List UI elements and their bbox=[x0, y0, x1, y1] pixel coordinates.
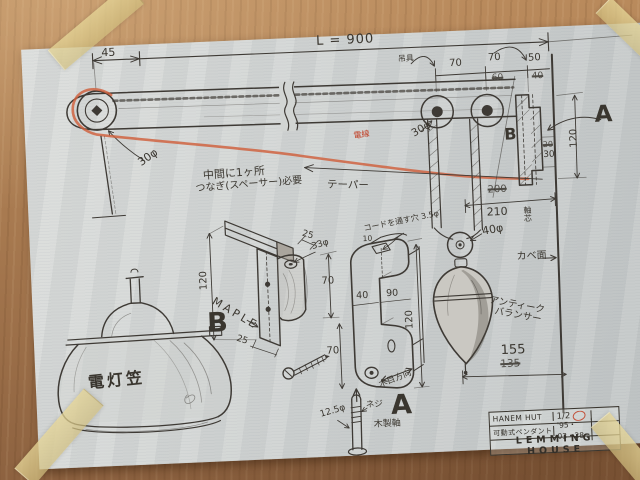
part-a-label: A bbox=[390, 391, 412, 420]
dim-40-old: 40 bbox=[532, 72, 544, 82]
part-a-dim-70: 70 bbox=[326, 346, 339, 357]
project-name: HANEM HUT bbox=[490, 412, 554, 424]
balancer-weight bbox=[432, 266, 496, 376]
part-b-dim-120: 120 bbox=[199, 271, 210, 291]
arm-bar bbox=[66, 71, 517, 141]
drawing-paper: 45 L = 900 吊具 70 70 60 50 40 30φ 30φ 中間に… bbox=[21, 23, 640, 470]
dim-50: 50 bbox=[528, 53, 541, 64]
note-hanger: 吊具 bbox=[398, 55, 414, 64]
part-a-dim-90: 90 bbox=[386, 289, 399, 299]
note-wood-shaft: 木製軸 bbox=[374, 420, 401, 431]
dim-30-step: 30 bbox=[543, 151, 555, 161]
part-a-dim-10: 10 bbox=[363, 235, 373, 243]
dim-70-a: 70 bbox=[449, 59, 462, 70]
dim-200-old: 200 bbox=[488, 185, 508, 196]
note-axis-core: 軸芯 bbox=[522, 206, 531, 222]
dim-60-old: 60 bbox=[492, 74, 504, 84]
photo-of-sketch: 45 L = 900 吊具 70 70 60 50 40 30φ 30φ 中間に… bbox=[0, 0, 640, 480]
wall-and-bracket bbox=[300, 53, 613, 424]
dim-total-length: L = 900 bbox=[316, 32, 375, 48]
dim-45: 45 bbox=[101, 47, 115, 59]
note-screw: ネジ bbox=[366, 400, 383, 410]
part-b-detail bbox=[209, 216, 341, 359]
part-a-dim-40: 40 bbox=[356, 291, 369, 301]
lamp-cord bbox=[89, 135, 126, 217]
part-a-dim-120: 120 bbox=[405, 310, 416, 330]
part-b-dim-70: 70 bbox=[321, 276, 334, 287]
dim-155: 155 bbox=[500, 343, 525, 358]
dim-135-old: 135 bbox=[500, 358, 521, 370]
dim-210: 210 bbox=[486, 206, 507, 218]
note-taper: テーパー bbox=[327, 180, 369, 192]
dim-120-wall: 120 bbox=[569, 128, 580, 148]
section-label-a: A bbox=[594, 102, 613, 127]
dim-20-old: 20 bbox=[543, 141, 554, 150]
dim-70-b: 70 bbox=[488, 53, 501, 64]
section-label-b: B bbox=[504, 126, 517, 143]
note-wall-face: カベ面 bbox=[516, 251, 546, 263]
pencil-linework bbox=[21, 23, 640, 470]
pulley-40 bbox=[447, 231, 483, 267]
